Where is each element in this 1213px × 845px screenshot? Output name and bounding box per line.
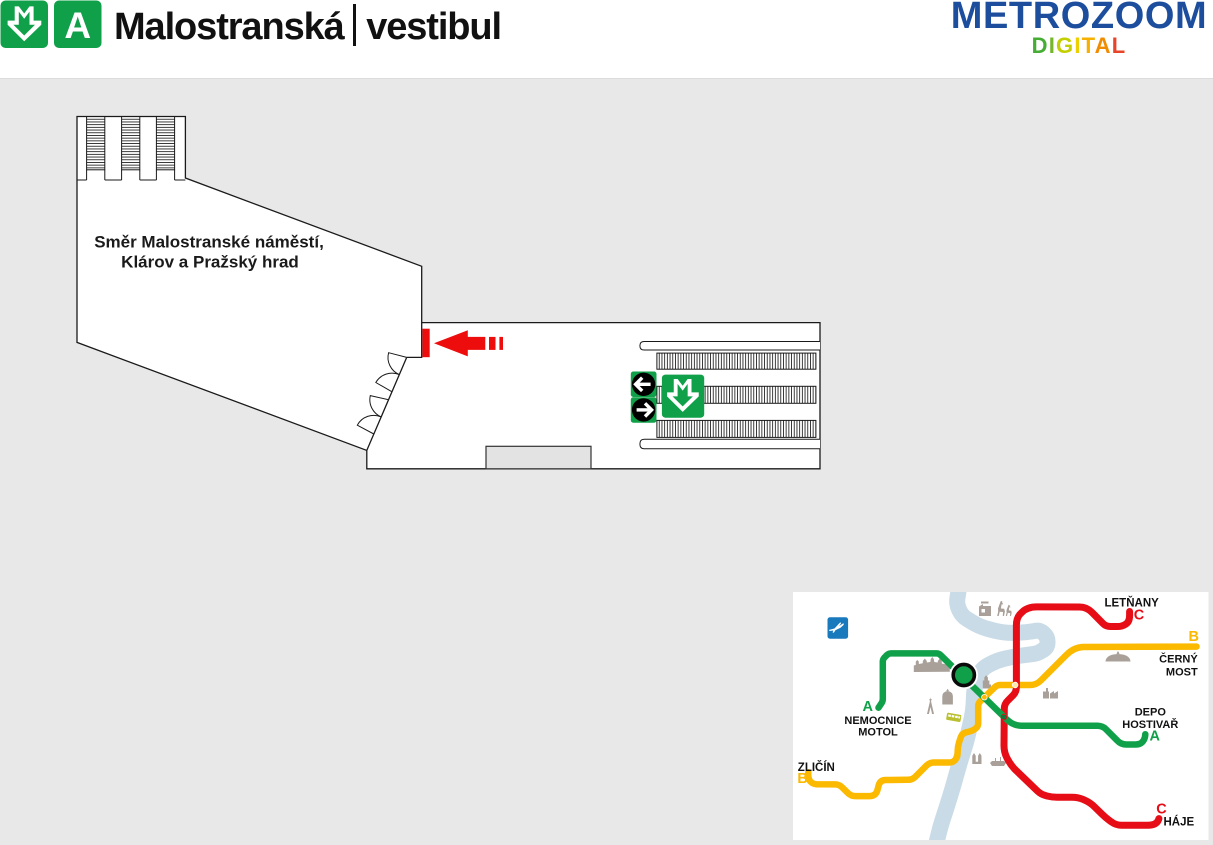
svg-text:MOST: MOST <box>1166 666 1198 678</box>
svg-text:LETŇANY: LETŇANY <box>1104 597 1159 610</box>
svg-text:C: C <box>1134 608 1145 624</box>
svg-text:ČERNÝ: ČERNÝ <box>1159 653 1198 666</box>
svg-text:Směr Malostranské náměstí,: Směr Malostranské náměstí, <box>94 233 324 252</box>
svg-text:B: B <box>1189 629 1199 645</box>
svg-text:MOTOL: MOTOL <box>858 727 898 739</box>
svg-text:A: A <box>863 699 874 715</box>
svg-text:C: C <box>1156 802 1167 818</box>
svg-text:NEMOCNICE: NEMOCNICE <box>844 715 911 727</box>
svg-text:B: B <box>797 771 807 787</box>
svg-text:HÁJE: HÁJE <box>1164 816 1195 829</box>
svg-text:A: A <box>1150 729 1161 745</box>
svg-text:Klárov a Pražský hrad: Klárov a Pražský hrad <box>121 253 299 272</box>
svg-text:DEPO: DEPO <box>1135 707 1167 719</box>
